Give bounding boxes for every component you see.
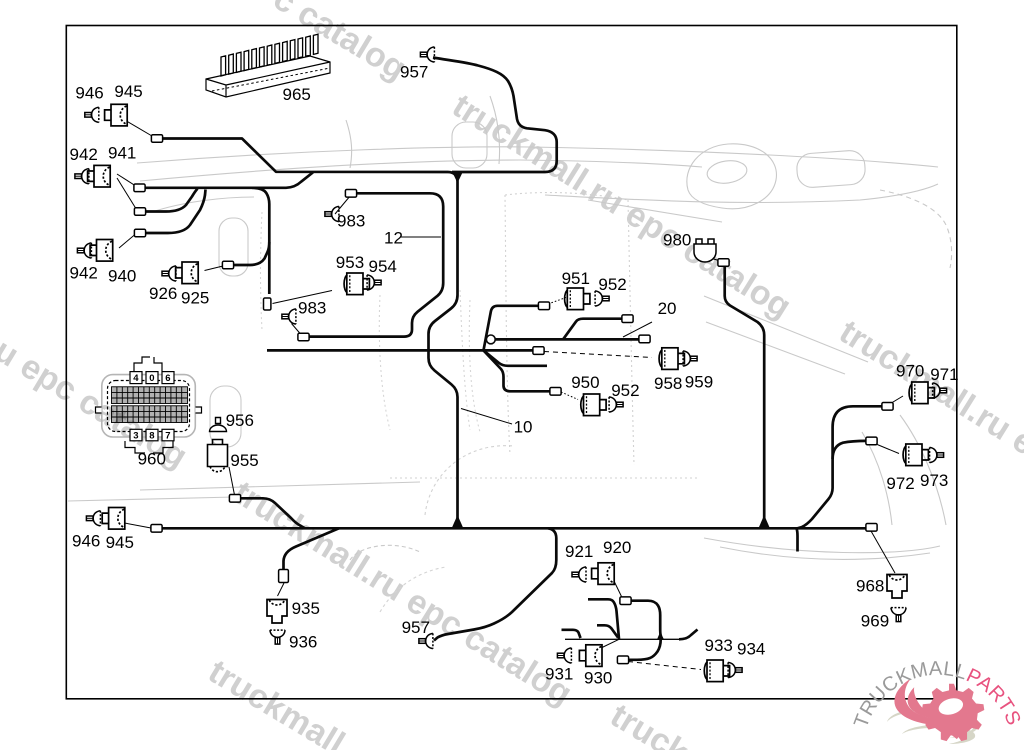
svg-text:954: 954 bbox=[369, 257, 397, 276]
svg-text:936: 936 bbox=[289, 633, 317, 652]
svg-text:969: 969 bbox=[861, 612, 889, 631]
svg-text:957: 957 bbox=[400, 63, 428, 82]
svg-text:10: 10 bbox=[514, 418, 533, 437]
svg-text:4: 4 bbox=[133, 373, 139, 384]
svg-text:958: 958 bbox=[654, 374, 682, 393]
svg-text:930: 930 bbox=[584, 669, 612, 688]
svg-text:945: 945 bbox=[114, 82, 142, 101]
svg-text:980: 980 bbox=[663, 231, 691, 250]
svg-text:921: 921 bbox=[565, 542, 593, 561]
svg-text:968: 968 bbox=[856, 576, 884, 595]
svg-text:955: 955 bbox=[230, 451, 258, 470]
svg-text:946: 946 bbox=[72, 532, 100, 551]
svg-text:7: 7 bbox=[165, 431, 170, 442]
svg-text:941: 941 bbox=[108, 144, 136, 163]
svg-text:965: 965 bbox=[283, 85, 311, 104]
svg-text:983: 983 bbox=[337, 212, 365, 231]
svg-text:946: 946 bbox=[75, 84, 103, 103]
svg-text:12: 12 bbox=[384, 229, 403, 248]
svg-text:960: 960 bbox=[138, 450, 166, 469]
svg-text:920: 920 bbox=[603, 538, 631, 557]
svg-text:956: 956 bbox=[226, 411, 254, 430]
svg-text:0: 0 bbox=[149, 373, 154, 384]
svg-text:6: 6 bbox=[165, 373, 170, 384]
svg-text:983: 983 bbox=[298, 299, 326, 318]
svg-text:20: 20 bbox=[658, 299, 677, 318]
svg-text:970: 970 bbox=[896, 362, 924, 381]
svg-text:952: 952 bbox=[598, 275, 626, 294]
svg-text:972: 972 bbox=[886, 474, 914, 493]
svg-text:3: 3 bbox=[133, 431, 138, 442]
svg-text:931: 931 bbox=[545, 665, 573, 684]
svg-text:942: 942 bbox=[70, 264, 98, 283]
svg-text:952: 952 bbox=[611, 381, 639, 400]
svg-text:971: 971 bbox=[930, 365, 958, 384]
svg-text:925: 925 bbox=[181, 289, 209, 308]
svg-text:940: 940 bbox=[108, 267, 136, 286]
svg-text:8: 8 bbox=[149, 431, 154, 442]
svg-text:945: 945 bbox=[106, 533, 134, 552]
svg-text:959: 959 bbox=[685, 373, 713, 392]
svg-text:942: 942 bbox=[70, 145, 98, 164]
svg-text:934: 934 bbox=[737, 640, 765, 659]
svg-text:953: 953 bbox=[336, 253, 364, 272]
svg-text:950: 950 bbox=[571, 373, 599, 392]
svg-text:951: 951 bbox=[562, 269, 590, 288]
svg-text:973: 973 bbox=[920, 471, 948, 490]
svg-text:933: 933 bbox=[705, 636, 733, 655]
svg-text:957: 957 bbox=[402, 618, 430, 637]
svg-text:935: 935 bbox=[292, 599, 320, 618]
svg-text:926: 926 bbox=[149, 284, 177, 303]
